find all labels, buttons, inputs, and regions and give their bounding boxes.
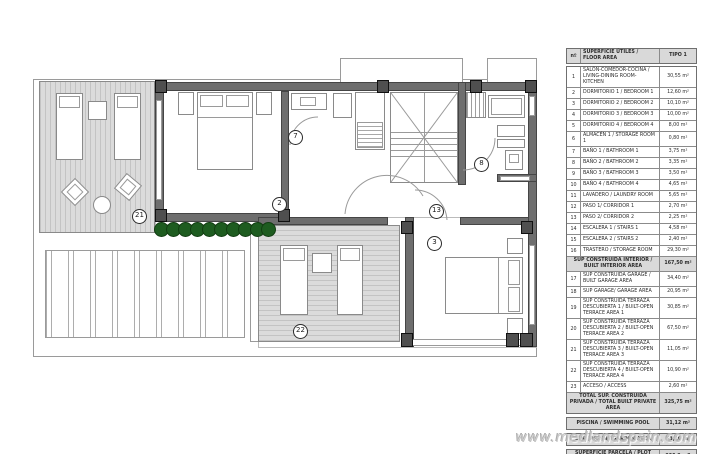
table-row: 4DORMITORIO 3 / BEDROOM 310,00 m² bbox=[567, 109, 696, 120]
row-value: 11,05 m² bbox=[659, 340, 696, 360]
pillar bbox=[521, 221, 533, 234]
vanity bbox=[291, 93, 327, 110]
table-row: 11LAVADERO / LAUNDRY ROOM5,65 m² bbox=[567, 190, 696, 201]
row-value: 30,85 m² bbox=[659, 298, 696, 318]
window bbox=[529, 245, 535, 325]
row-value: 20,95 m² bbox=[659, 287, 696, 297]
pillar bbox=[377, 80, 389, 93]
row-value: 10,90 m² bbox=[659, 361, 696, 381]
table-row: 13PASO 2/ CORRIDOR 22,25 m² bbox=[567, 212, 696, 223]
row-number: 4 bbox=[567, 110, 580, 120]
row-value: 0,80 m² bbox=[659, 132, 696, 146]
row-value: 30,55 m² bbox=[659, 67, 696, 87]
summary-row: SUPERFICIE PARCELA / PLOT AREA300,3 m2 bbox=[566, 449, 697, 454]
pillar bbox=[155, 80, 167, 93]
row-description: BAÑO 3 / BATHROOM 3 bbox=[580, 169, 659, 179]
nightstand bbox=[178, 92, 194, 115]
row-description: SALÓN-COMEDOR-COCINA / LIVING-DINING ROO… bbox=[580, 67, 659, 87]
row-number: 6 bbox=[567, 132, 580, 146]
washer bbox=[333, 93, 352, 118]
row-value: 10,00 m² bbox=[659, 110, 696, 120]
row-number: 18 bbox=[567, 287, 580, 297]
window bbox=[156, 100, 162, 200]
row-value: 4,58 m² bbox=[659, 224, 696, 234]
pillow bbox=[508, 260, 520, 285]
room-label-2: 2 bbox=[272, 197, 287, 212]
row-value: 10,10 m² bbox=[659, 99, 696, 109]
row-value: 3,50 m² bbox=[659, 169, 696, 179]
row-value: 2,70 m² bbox=[659, 202, 696, 212]
table-row: 5DORMITORIO 4 / BEDROOM 48,00 m² bbox=[567, 120, 696, 131]
side-table bbox=[312, 253, 332, 273]
row-value: 2,40 m² bbox=[659, 235, 696, 245]
row-number: 5 bbox=[567, 121, 580, 131]
row-number: 22 bbox=[567, 361, 580, 381]
table-row: 3DORMITORIO 2 / BEDROOM 210,10 m² bbox=[567, 98, 696, 109]
row-description: DORMITORIO 1 / BEDROOM 1 bbox=[580, 88, 659, 98]
row-value: 3,35 m² bbox=[659, 158, 696, 168]
row-description: BAÑO 1 / BATHROOM 1 bbox=[580, 147, 659, 157]
sink bbox=[300, 97, 316, 106]
row-description: SUP CONSTRUIDA INTERIOR / BUILT INTERIOR… bbox=[567, 257, 659, 271]
sun-lounger bbox=[280, 245, 308, 315]
table-row: 18SUP GARAGE/ GARAGE AREA20,95 m² bbox=[567, 286, 696, 297]
sink bbox=[497, 139, 525, 148]
row-description: SUP CONSTRUIDA TERRAZA DESCUBIERTA 1 / B… bbox=[580, 298, 659, 318]
row-number: 15 bbox=[567, 235, 580, 245]
row-description: TRASTERO / STORAGE ROOM bbox=[580, 246, 659, 256]
table-row: 16TRASTERO / STORAGE ROOM29,30 m² bbox=[567, 245, 696, 256]
table-row: 15ESCALERA 2 / STAIRS 22,40 m² bbox=[567, 234, 696, 245]
row-number: 3 bbox=[567, 99, 580, 109]
row-number: 10 bbox=[567, 180, 580, 190]
row-value: 2,60 m² bbox=[659, 382, 696, 392]
row-number: 14 bbox=[567, 224, 580, 234]
row-description: SUP CONSTRUIDA TERRAZA DESCUBIERTA 4 / B… bbox=[580, 361, 659, 381]
table-row: 21SUP CONSTRUIDA TERRAZA DESCUBIERTA 3 /… bbox=[567, 339, 696, 360]
bed bbox=[197, 92, 253, 170]
room-label-21: 21 bbox=[132, 209, 147, 224]
nightstand bbox=[507, 238, 523, 254]
row-value: 4,65 m² bbox=[659, 180, 696, 190]
pillar bbox=[401, 333, 413, 347]
row-description: SUP CONSTRUIDA GARAGE / BUILT GARAGE ARE… bbox=[580, 272, 659, 286]
row-description: TOTAL SUP. CONSTRUIDA PRIVADA / TOTAL BU… bbox=[567, 393, 659, 413]
room-label-8: 8 bbox=[474, 157, 489, 172]
row-number: 9 bbox=[567, 169, 580, 179]
row-number: 7 bbox=[567, 147, 580, 157]
pillow bbox=[508, 287, 520, 312]
row-value: 29,30 m² bbox=[659, 246, 696, 256]
table-row: 1SALÓN-COMEDOR-COCINA / LIVING-DINING RO… bbox=[567, 67, 696, 87]
table-row: 20SUP CONSTRUIDA TERRAZA DESCUBIERTA 2 /… bbox=[567, 318, 696, 339]
area-table: nº SUPERFICIE ÚTILES / FLOOR AREA TIPO 1… bbox=[566, 48, 697, 454]
table-row: 9BAÑO 3 / BATHROOM 33,50 m² bbox=[567, 168, 696, 179]
header-number-col: nº bbox=[567, 49, 580, 63]
summary-description: PISCINA / SWIMMING POOL bbox=[567, 418, 659, 429]
row-value: 167,50 m² bbox=[659, 257, 696, 271]
bathtub bbox=[488, 95, 525, 118]
sun-lounger bbox=[337, 245, 363, 315]
row-value: 8,00 m² bbox=[659, 121, 696, 131]
row-description: SUP CONSTRUIDA TERRAZA DESCUBIERTA 2 / B… bbox=[580, 319, 659, 339]
round-table bbox=[93, 196, 111, 214]
summary-value: 300,3 m2 bbox=[659, 450, 696, 454]
header-value-col: TIPO 1 bbox=[659, 49, 696, 63]
nightstand bbox=[507, 318, 523, 334]
row-description: DORMITORIO 2 / BEDROOM 2 bbox=[580, 99, 659, 109]
row-value: 5,65 m² bbox=[659, 191, 696, 201]
table-row: 6ALMACÉN 1 / STORAGE ROOM 10,80 m² bbox=[567, 131, 696, 146]
pillar bbox=[520, 333, 533, 347]
table-row: 2DORMITORIO 1 / BEDROOM 112,60 m² bbox=[567, 87, 696, 98]
row-number: 8 bbox=[567, 158, 580, 168]
row-description: PASO 2/ CORRIDOR 2 bbox=[580, 213, 659, 223]
room-label-13: 13 bbox=[429, 204, 444, 219]
row-value: 325,75 m² bbox=[659, 393, 696, 413]
row-description: BAÑO 2 / BATHROOM 2 bbox=[580, 158, 659, 168]
shelf bbox=[500, 176, 530, 181]
row-description: ALMACÉN 1 / STORAGE ROOM 1 bbox=[580, 132, 659, 146]
pillow bbox=[200, 95, 223, 107]
header-desc-col: SUPERFICIE ÚTILES / FLOOR AREA bbox=[580, 49, 659, 63]
pillow bbox=[226, 95, 249, 107]
table-row: 8BAÑO 2 / BATHROOM 23,35 m² bbox=[567, 157, 696, 168]
table-section-row: TOTAL SUP. CONSTRUIDA PRIVADA / TOTAL BU… bbox=[567, 392, 696, 413]
room-label-22: 22 bbox=[293, 324, 308, 339]
vanity bbox=[497, 125, 525, 137]
row-value: 3,75 m² bbox=[659, 147, 696, 157]
row-number: 17 bbox=[567, 272, 580, 286]
row-description: SUP CONSTRUIDA TERRAZA DESCUBIERTA 3 / B… bbox=[580, 340, 659, 360]
roof-projection bbox=[340, 58, 463, 84]
sun-lounger bbox=[56, 93, 83, 160]
row-description: DORMITORIO 4 / BEDROOM 4 bbox=[580, 121, 659, 131]
pillar bbox=[401, 221, 413, 234]
watermark: www.medlandspain.com bbox=[516, 430, 697, 446]
window bbox=[529, 96, 535, 116]
toilet bbox=[505, 150, 523, 170]
stairs bbox=[390, 92, 458, 183]
row-number: 20 bbox=[567, 319, 580, 339]
row-description: PASO 1/ CORRIDOR 1 bbox=[580, 202, 659, 212]
row-description: ACCESO / ACCESS bbox=[580, 382, 659, 392]
row-value: 34,40 m² bbox=[659, 272, 696, 286]
side-table bbox=[88, 101, 107, 120]
pillar bbox=[470, 80, 482, 93]
row-description: ESCALERA 2 / STAIRS 2 bbox=[580, 235, 659, 245]
table-row: 14ESCALERA 1 / STAIRS 14,58 m² bbox=[567, 223, 696, 234]
table-row: 17SUP CONSTRUIDA GARAGE / BUILT GARAGE A… bbox=[567, 271, 696, 286]
shower bbox=[466, 92, 486, 118]
row-number: 1 bbox=[567, 67, 580, 87]
pergola bbox=[45, 250, 245, 338]
row-number: 12 bbox=[567, 202, 580, 212]
row-number: 2 bbox=[567, 88, 580, 98]
table-row: 23ACCESO / ACCESS2,60 m² bbox=[567, 381, 696, 392]
row-number: 23 bbox=[567, 382, 580, 392]
pillar bbox=[525, 80, 537, 93]
wall-stair-right bbox=[458, 82, 466, 185]
row-number: 11 bbox=[567, 191, 580, 201]
row-description: BAÑO 4 / BATHROOM 4 bbox=[580, 180, 659, 190]
row-number: 19 bbox=[567, 298, 580, 318]
row-description: LAVADERO / LAUNDRY ROOM bbox=[580, 191, 659, 201]
table-row: 22SUP CONSTRUIDA TERRAZA DESCUBIERTA 4 /… bbox=[567, 360, 696, 381]
summary-description: SUPERFICIE PARCELA / PLOT AREA bbox=[567, 450, 659, 454]
table-row: 19SUP CONSTRUIDA TERRAZA DESCUBIERTA 1 /… bbox=[567, 297, 696, 318]
summary-value: 31,12 m² bbox=[659, 418, 696, 429]
row-description: DORMITORIO 3 / BEDROOM 3 bbox=[580, 110, 659, 120]
row-value: 12,60 m² bbox=[659, 88, 696, 98]
table-row: 12PASO 1/ CORRIDOR 12,70 m² bbox=[567, 201, 696, 212]
row-description: ESCALERA 1 / STAIRS 1 bbox=[580, 224, 659, 234]
table-row: 10BAÑO 4 / BATHROOM 44,65 m² bbox=[567, 179, 696, 190]
wall-bedroom2-left bbox=[405, 217, 414, 347]
closet-hatch bbox=[357, 122, 383, 148]
row-number: 13 bbox=[567, 213, 580, 223]
room-label-3: 3 bbox=[427, 236, 442, 251]
row-number: 16 bbox=[567, 246, 580, 256]
sun-lounger bbox=[114, 93, 141, 160]
row-description: SUP GARAGE/ GARAGE AREA bbox=[580, 287, 659, 297]
table-section-row: SUP CONSTRUIDA INTERIOR / BUILT INTERIOR… bbox=[567, 256, 696, 271]
floorplan-page: 2 3 7 8 13 21 22 nº SUPERFICIE ÚTILES / … bbox=[0, 0, 705, 454]
pillar bbox=[155, 209, 167, 222]
area-table-header: nº SUPERFICIE ÚTILES / FLOOR AREA TIPO 1 bbox=[566, 48, 697, 64]
bed bbox=[445, 257, 523, 314]
pillar bbox=[506, 333, 519, 347]
summary-row: PISCINA / SWIMMING POOL31,12 m² bbox=[566, 417, 697, 430]
table-row: 7BAÑO 1 / BATHROOM 13,75 m² bbox=[567, 146, 696, 157]
room-label-7: 7 bbox=[288, 130, 303, 145]
row-number: 21 bbox=[567, 340, 580, 360]
row-value: 2,25 m² bbox=[659, 213, 696, 223]
nightstand bbox=[256, 92, 272, 115]
area-table-body: 1SALÓN-COMEDOR-COCINA / LIVING-DINING RO… bbox=[566, 66, 697, 414]
row-value: 67,50 m² bbox=[659, 319, 696, 339]
